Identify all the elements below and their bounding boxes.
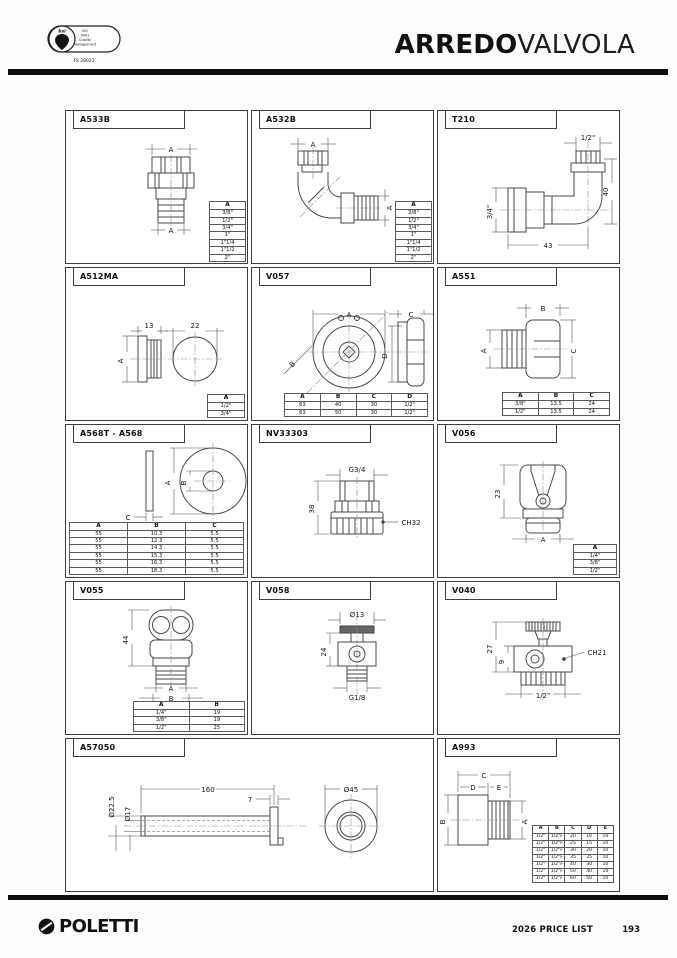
svg-text:Management: Management [74, 43, 97, 47]
dim-value: 50 [581, 876, 597, 883]
dim-value: 30 [356, 409, 392, 416]
svg-text:Ø45: Ø45 [344, 786, 358, 794]
dim-value: 1/2"F [549, 834, 565, 841]
dimension-table: ABC3/8"13.5241/2"13.524 [502, 392, 610, 416]
svg-text:40: 40 [602, 188, 610, 197]
price-list-label: 2026 PRICE LIST [512, 925, 593, 935]
svg-text:13: 13 [145, 322, 154, 330]
dim-row: 5518.35.5 [70, 567, 244, 574]
dim-col-header: A [503, 393, 539, 401]
dim-col-header: A [574, 544, 617, 552]
dim-row: 3/4" [210, 224, 246, 231]
dim-value: 3/8" [134, 717, 190, 724]
dim-row: 1" [396, 232, 432, 239]
dim-row: 1"1/2 [210, 247, 246, 254]
dim-row: 3/8"13.524 [503, 401, 610, 408]
dim-value: 10 [597, 841, 613, 848]
title-bold: ARREDO [395, 30, 518, 60]
dim-value: 5.5 [186, 552, 244, 559]
dim-col-header: A [396, 202, 432, 210]
part-code-label: V056 [445, 424, 557, 443]
dim-row: 6350301/2" [285, 409, 428, 416]
dim-row: 1/2"13.524 [503, 408, 610, 415]
dim-value: 1/2"F [549, 862, 565, 869]
dim-value: 40 [565, 862, 581, 869]
dim-row: 3/8" [396, 210, 432, 217]
dim-row: 1/2"1/2"F352510 [533, 855, 614, 862]
dim-value: 1/2" [533, 869, 549, 876]
svg-text:B: B [439, 819, 447, 824]
dim-value: 1/4" [574, 552, 617, 559]
dim-row: 5512.35.5 [70, 537, 244, 544]
dim-col-header: C [574, 393, 610, 401]
dim-value: 18.3 [128, 567, 186, 574]
dim-value: 1" [396, 232, 432, 239]
dim-value: 1/2"F [549, 841, 565, 848]
dim-col-header: A [285, 394, 321, 402]
dim-value: 25 [565, 841, 581, 848]
dim-value: 15.3 [128, 552, 186, 559]
dim-col-header: B [128, 522, 186, 530]
dim-value: 1/2" [533, 862, 549, 869]
dim-row: 1/2"1/2"F403010 [533, 862, 614, 869]
dim-value: 1/2" [396, 217, 432, 224]
part-code-label: V040 [445, 581, 557, 600]
dim-value: 1"1/4 [396, 239, 432, 246]
part-code-label: NV33303 [259, 424, 371, 443]
svg-text:G1/8: G1/8 [349, 694, 366, 702]
dim-value: 10 [581, 834, 597, 841]
svg-text:CH21: CH21 [587, 649, 606, 657]
svg-text:ISO: ISO [82, 29, 88, 33]
dim-value: 3/4" [208, 410, 245, 417]
dim-col-header: A [533, 826, 549, 834]
dim-value: 1/2" [533, 876, 549, 883]
dim-col-header: E [597, 826, 613, 834]
svg-text:A: A [117, 358, 125, 363]
dim-value: 1/4" [134, 709, 190, 716]
svg-text:1/2": 1/2" [581, 134, 596, 142]
dim-row: 1/2"25 [134, 724, 245, 731]
svg-text:9001: 9001 [81, 34, 90, 38]
dim-value: 12.3 [128, 537, 186, 544]
dim-value: 40 [320, 402, 356, 409]
dim-value: 3/4" [210, 224, 246, 231]
part-code-label: A512MA [73, 267, 185, 286]
svg-text:A: A [386, 205, 394, 210]
certification-badge: bsi ISO 9001 Quality Management FS 28021 [38, 16, 130, 70]
dim-value: 24 [574, 401, 610, 408]
dim-value: 5.5 [186, 530, 244, 537]
dim-value: 40 [581, 869, 597, 876]
dim-row: 5516.35.5 [70, 560, 244, 567]
dim-value: 13.5 [538, 401, 574, 408]
dim-row: 1/4"19 [134, 709, 245, 716]
svg-text:D: D [470, 784, 475, 792]
dim-value: 10 [597, 855, 613, 862]
dim-value: 30 [356, 402, 392, 409]
dim-value: 1"1/2 [396, 247, 432, 254]
svg-text:bsi: bsi [58, 29, 66, 35]
svg-text:B: B [288, 360, 297, 369]
dim-value: 1/2"F [549, 855, 565, 862]
dim-col-header: D [581, 826, 597, 834]
svg-text:A: A [169, 146, 174, 154]
dim-value: 1/2" [134, 724, 190, 731]
dim-row: 5514.35.5 [70, 545, 244, 552]
catalog-cell-a512ma: A512MA 13 22 A A1/2"3/4" [65, 267, 248, 421]
dim-col-header: A [208, 395, 245, 403]
svg-text:43: 43 [544, 242, 553, 250]
dim-row: 1"1/2 [396, 247, 432, 254]
dim-value: 1/2" [392, 402, 428, 409]
dim-col-header: C [565, 826, 581, 834]
catalog-cell-a568: A568T - A568 C A B ABC5510.35.55512.35.5… [65, 424, 248, 578]
dim-value: 19 [189, 717, 245, 724]
dim-value: 15 [581, 841, 597, 848]
dim-col-header: D [392, 394, 428, 402]
catalog-cell-a57050: A57050 160 7 Ø22.5 Ø17 Ø45 [65, 738, 434, 892]
dim-col-header: A [134, 701, 190, 709]
dim-row: 1" [210, 232, 246, 239]
dim-value: 1/2" [574, 567, 617, 574]
dim-row: 1/2"1/2"F302010 [533, 848, 614, 855]
catalog-cell-t210: T210 1/2" 40 3/4" 43 [437, 110, 620, 264]
dim-row: 3/8" [574, 560, 617, 567]
svg-text:B: B [541, 305, 546, 313]
dim-value: 55 [70, 537, 128, 544]
brand-name: POLETTI [59, 916, 139, 937]
dim-value: 25 [581, 855, 597, 862]
dimension-table: ABC5510.35.55512.35.55514.35.55515.35.55… [69, 522, 244, 575]
dim-row: 1/2" [210, 217, 246, 224]
dim-col-header: B [549, 826, 565, 834]
dimension-table: A3/8"1/2"3/4"1"1"1/41"1/22" [209, 201, 246, 262]
dim-value: 10 [597, 848, 613, 855]
dim-col-header: A [70, 522, 128, 530]
svg-text:A: A [480, 348, 488, 353]
dim-value: 3/8" [503, 401, 539, 408]
dim-value: 20 [581, 848, 597, 855]
catalog-cell-v057: V057 A B C D [251, 267, 434, 421]
dim-value: 5.5 [186, 567, 244, 574]
dim-row: 3/8" [210, 210, 246, 217]
dim-row: 1/2"1/2"F201010 [533, 834, 614, 841]
dim-value: 20 [565, 834, 581, 841]
catalog-cell-a551: A551 B A C ABC3/8"13.5241/2"13.524 [437, 267, 620, 421]
dim-value: 3/8" [396, 210, 432, 217]
part-code-label: V058 [259, 581, 371, 600]
svg-text:Ø22.5: Ø22.5 [108, 796, 116, 817]
dim-value: 14.3 [128, 545, 186, 552]
dim-value: 10 [597, 834, 613, 841]
dim-value: 2" [396, 254, 432, 261]
dim-row: 3/8"19 [134, 717, 245, 724]
dim-value: 10 [597, 862, 613, 869]
technical-drawing: 1/2" 40 3/4" 43 [438, 111, 619, 263]
dim-row: 1/2"1/2"F504010 [533, 869, 614, 876]
dim-row: 6340301/2" [285, 402, 428, 409]
dimension-table: ABCD6340301/2"6350301/2" [284, 393, 428, 417]
svg-text:A: A [169, 685, 174, 693]
svg-text:24: 24 [320, 647, 328, 656]
dim-value: 1/2" [533, 855, 549, 862]
dim-row: 3/4" [208, 410, 245, 417]
svg-text:G3/4: G3/4 [349, 466, 366, 474]
svg-text:44: 44 [122, 635, 130, 644]
dim-value: 1/2"F [549, 869, 565, 876]
dim-value: 16.3 [128, 560, 186, 567]
part-code-label: A533B [73, 110, 185, 129]
technical-drawing: G3/4 38 CH32 [252, 425, 433, 577]
svg-text:Quality: Quality [79, 38, 91, 42]
dim-value: 50 [320, 409, 356, 416]
dim-col-header: B [320, 394, 356, 402]
catalog-cell-v055: V055 44 A B AB1/4"193/8"1 [65, 581, 248, 735]
dim-row: 1/2"1/2"F605010 [533, 876, 614, 883]
dim-row: 1/2" [208, 403, 245, 410]
technical-drawing: 160 7 Ø22.5 Ø17 Ø45 [66, 739, 433, 891]
dim-row: 5510.35.5 [70, 530, 244, 537]
dim-value: 1/2" [503, 408, 539, 415]
dim-value: 10 [597, 876, 613, 883]
dim-value: 3/8" [574, 560, 617, 567]
dim-row: 2" [210, 254, 246, 261]
dim-value: 1/2"F [549, 848, 565, 855]
svg-text:27: 27 [486, 645, 494, 654]
part-code-label: A993 [445, 738, 557, 757]
dim-col-header: C [186, 522, 244, 530]
dim-value: 19 [189, 709, 245, 716]
catalog-cell-a533b: A533B A A A3/8"1/2"3/4 [65, 110, 248, 264]
dim-value: 3/8" [210, 210, 246, 217]
dimension-table: A1/2"3/4" [207, 394, 245, 418]
dimension-table: A1/4"3/8"1/2" [573, 544, 617, 575]
header-rule [8, 69, 668, 75]
svg-text:B: B [180, 480, 188, 485]
page-number: 193 [622, 925, 640, 935]
svg-text:A: A [169, 227, 174, 235]
svg-text:38: 38 [308, 505, 316, 514]
poletti-logo-icon [38, 918, 55, 935]
svg-text:FS 28021: FS 28021 [73, 58, 94, 64]
dimension-table: A3/8"1/2"3/4"1"1"1/41"1/22" [395, 201, 432, 262]
dim-col-header: A [210, 202, 246, 210]
dim-value: 10.3 [128, 530, 186, 537]
part-code-label: V057 [259, 267, 371, 286]
part-code-label: T210 [445, 110, 557, 129]
page-title: ARREDOVALVOLA [395, 30, 635, 60]
dim-value: 60 [565, 876, 581, 883]
dim-value: 13.5 [538, 408, 574, 415]
dim-value: 35 [565, 855, 581, 862]
dim-value: 1"1/2 [210, 247, 246, 254]
dimension-table: AB1/4"193/8"191/2"25 [133, 701, 245, 732]
technical-drawing: 27 9 CH21 1/2" [438, 582, 619, 734]
dim-col-header: B [538, 393, 574, 401]
dim-value: 63 [285, 402, 321, 409]
dim-row: 2" [396, 254, 432, 261]
part-code-label: A57050 [73, 738, 185, 757]
catalog-cell-nv33303: NV33303 G3/4 38 CH32 [251, 424, 434, 578]
dim-value: 2" [210, 254, 246, 261]
svg-text:E: E [497, 784, 501, 792]
dimension-table: ABCDE1/2"1/2"F2010101/2"1/2"F2515101/2"1… [532, 825, 614, 883]
dim-row: 3/4" [396, 224, 432, 231]
dim-value: 10 [597, 869, 613, 876]
dim-value: 1/2" [533, 848, 549, 855]
dim-value: 1" [210, 232, 246, 239]
svg-text:22: 22 [191, 322, 200, 330]
dim-value: 50 [565, 869, 581, 876]
part-code-label: A568T - A568 [73, 424, 185, 443]
catalog-cell-v040: V040 27 9 CH21 1/2" [437, 581, 620, 735]
dim-row: 1"1/4 [210, 239, 246, 246]
dim-row: 1/2" [574, 567, 617, 574]
dim-value: 30 [565, 848, 581, 855]
dim-value: 30 [581, 862, 597, 869]
svg-text:7: 7 [248, 796, 252, 804]
dim-row: 5515.35.5 [70, 552, 244, 559]
catalog-page: { "header": { "title_bold": "ARREDO", "t… [0, 0, 677, 958]
svg-text:3/4": 3/4" [486, 205, 494, 220]
dim-row: 1/4" [574, 552, 617, 559]
dim-row: 1"1/4 [396, 239, 432, 246]
dim-value: 55 [70, 552, 128, 559]
dim-value: 25 [189, 724, 245, 731]
dim-value: 1/2" [210, 217, 246, 224]
svg-text:A: A [164, 480, 172, 485]
dim-value: 5.5 [186, 560, 244, 567]
dim-col-header: C [356, 394, 392, 402]
dim-value: 55 [70, 567, 128, 574]
svg-text:C: C [482, 772, 487, 780]
footer-rule [8, 895, 668, 900]
dim-row: 1/2"1/2"F251510 [533, 841, 614, 848]
svg-text:A: A [541, 536, 546, 544]
svg-text:160: 160 [201, 786, 214, 794]
dim-row: 1/2" [396, 217, 432, 224]
part-code-label: A551 [445, 267, 557, 286]
dim-value: 24 [574, 408, 610, 415]
catalog-cell-v058: V058 Ø13 24 G1/8 [251, 581, 434, 735]
dim-value: 1/2" [392, 409, 428, 416]
dim-value: 55 [70, 560, 128, 567]
dim-value: 1/2"F [549, 876, 565, 883]
dim-value: 1/2" [533, 841, 549, 848]
dim-value: 1/2" [208, 403, 245, 410]
brand-logo: POLETTI [38, 916, 139, 937]
part-code-label: A532B [259, 110, 371, 129]
catalog-cell-v056: V056 23 A A1/4"3/8"1/2" [437, 424, 620, 578]
svg-text:9: 9 [498, 660, 506, 664]
svg-text:C: C [570, 348, 578, 353]
part-code-label: V055 [73, 581, 185, 600]
dim-col-header: B [189, 701, 245, 709]
dim-value: 5.5 [186, 537, 244, 544]
dim-value: 5.5 [186, 545, 244, 552]
dim-value: 3/4" [396, 224, 432, 231]
technical-drawing: Ø13 24 G1/8 [252, 582, 433, 734]
svg-text:Ø17: Ø17 [124, 807, 132, 821]
svg-text:CH32: CH32 [401, 519, 420, 527]
title-light: VALVOLA [517, 30, 635, 60]
dim-value: 1"1/4 [210, 239, 246, 246]
dim-value: 55 [70, 545, 128, 552]
catalog-cell-a993: A993 C D E B A [437, 738, 620, 892]
dim-value: 55 [70, 530, 128, 537]
catalog-cell-a532b: A532B A A [251, 110, 434, 264]
catalog-grid: A533B A A A3/8"1/2"3/4 [65, 110, 618, 890]
dim-value: 63 [285, 409, 321, 416]
svg-text:23: 23 [494, 490, 502, 499]
dim-value: 1/2" [533, 834, 549, 841]
